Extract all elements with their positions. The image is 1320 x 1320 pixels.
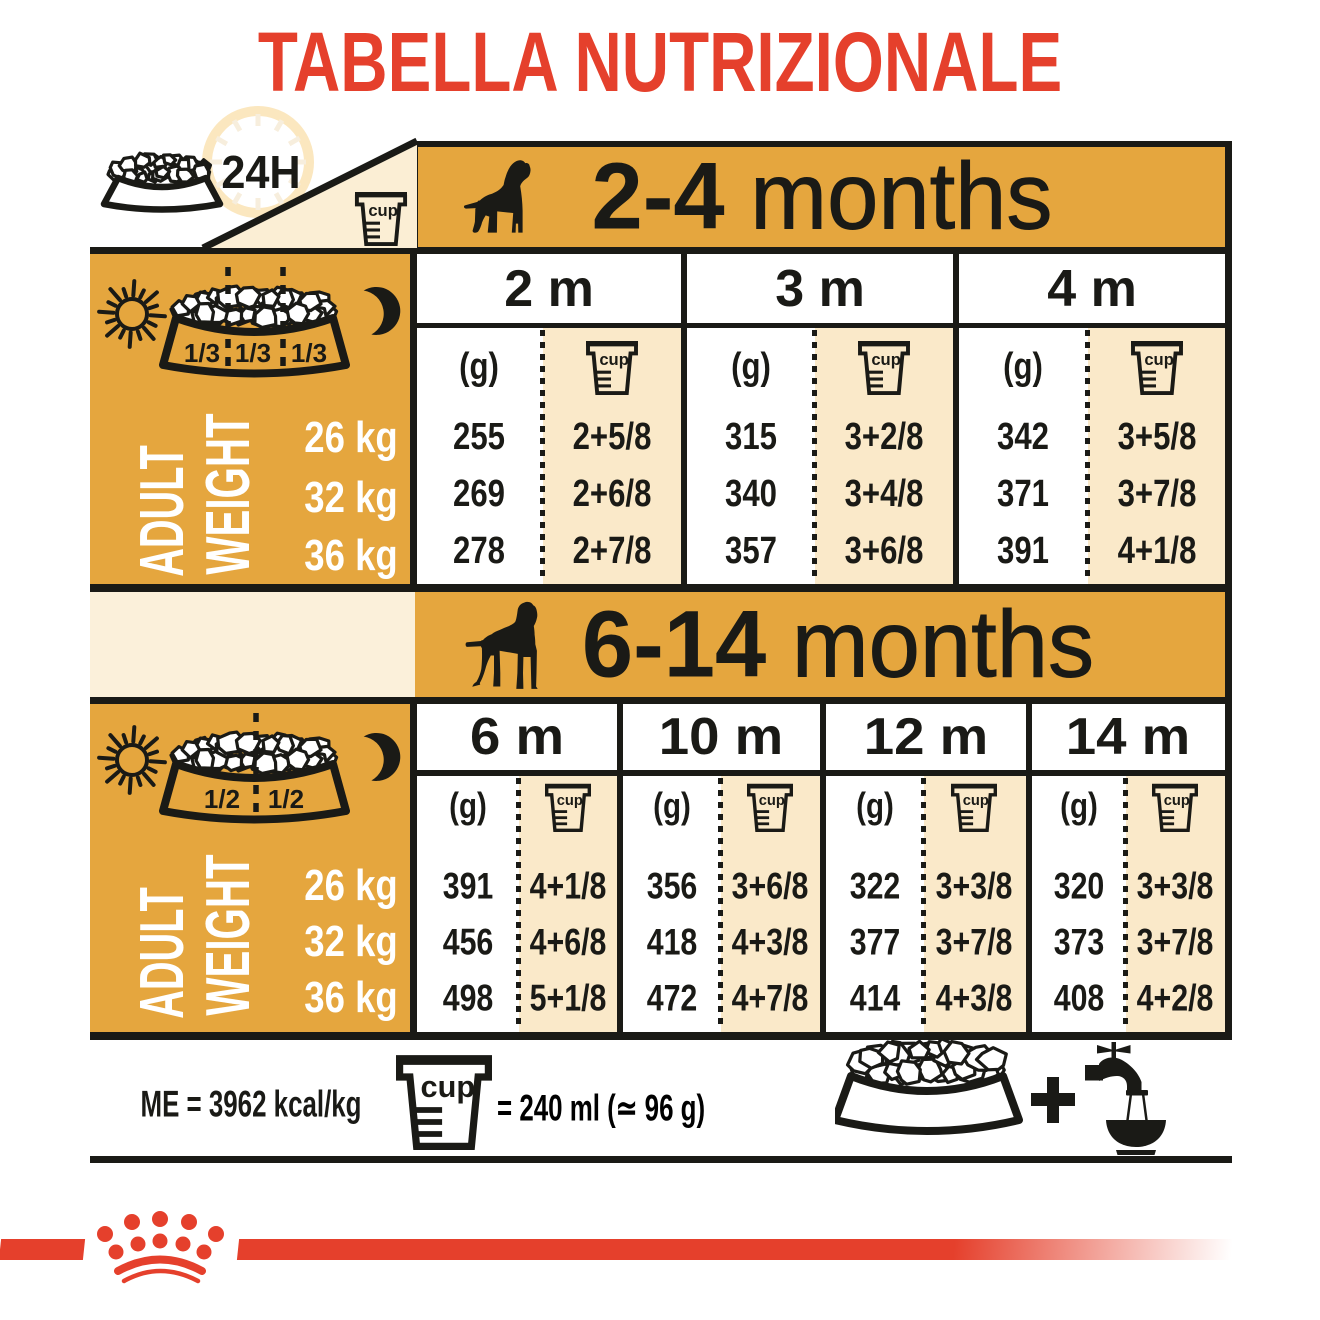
- svg-text:cup: cup: [1164, 793, 1190, 809]
- svg-text:1/3: 1/3: [291, 338, 327, 368]
- svg-text:1/3: 1/3: [235, 338, 271, 368]
- svg-text:1/2: 1/2: [268, 784, 304, 814]
- svg-text:1/2: 1/2: [204, 784, 240, 814]
- svg-text:cup: cup: [963, 793, 989, 809]
- svg-text:cup: cup: [421, 1069, 476, 1104]
- svg-text:cup: cup: [599, 350, 629, 369]
- svg-text:cup: cup: [1144, 350, 1174, 369]
- svg-text:cup: cup: [759, 793, 785, 809]
- svg-text:cup: cup: [871, 350, 901, 369]
- svg-text:1/3: 1/3: [184, 338, 220, 368]
- svg-text:cup: cup: [557, 793, 583, 809]
